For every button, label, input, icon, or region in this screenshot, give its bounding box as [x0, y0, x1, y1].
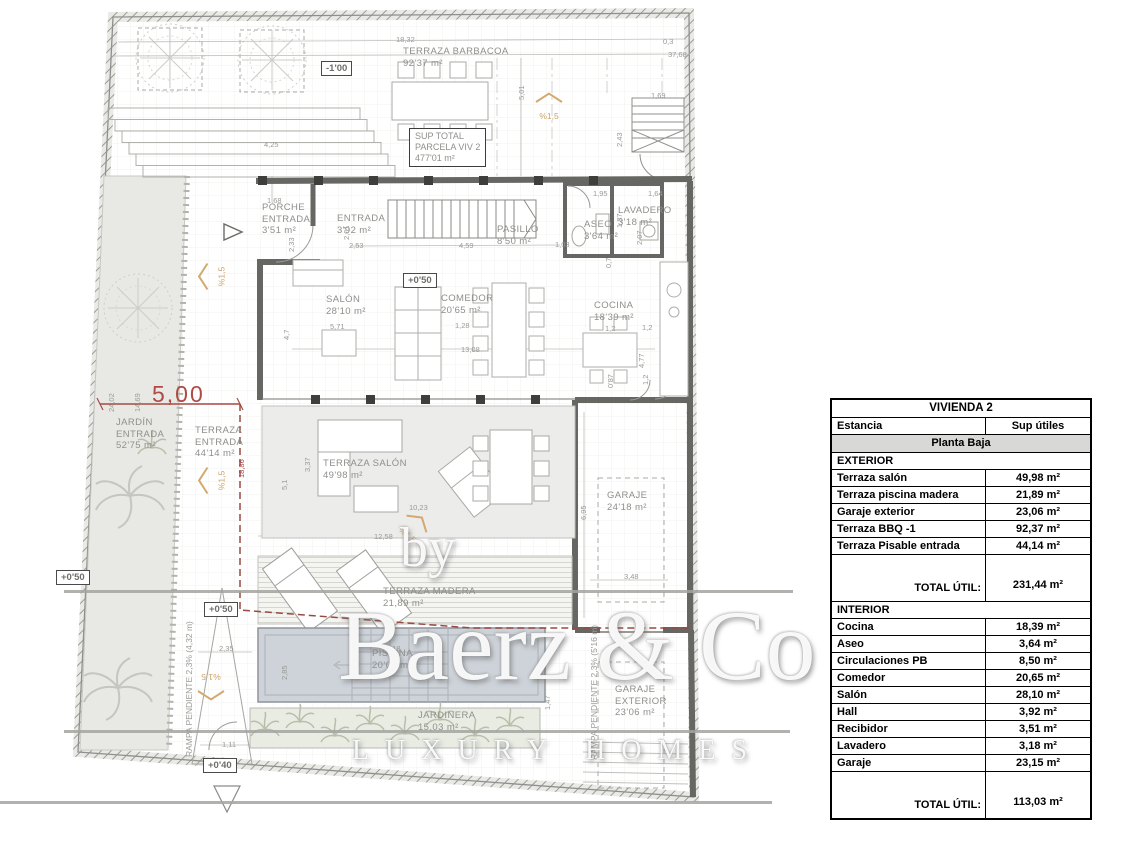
dimension-label: 1,28 [455, 322, 470, 330]
dimension-label: 0,3 [663, 38, 673, 46]
area-table: VIVIENDA 2EstanciaSup útilesPlanta BajaE… [830, 398, 1092, 820]
table-row: Terraza piscina madera21,89 m² [832, 486, 1090, 503]
table-row: Recibidor3,51 m² [832, 720, 1090, 737]
dimension-label: 4,25 [264, 141, 279, 149]
slope-chevron-icon [206, 468, 217, 494]
table-row: Salón28,10 m² [832, 686, 1090, 703]
room-name-cell: Salón [832, 687, 986, 703]
dimension-label: 4,7 [283, 330, 291, 340]
dimension-label: 2,43 [616, 132, 624, 147]
room-area-cell: 28,10 m² [986, 687, 1090, 703]
dimension-label: 2,01 [343, 225, 351, 240]
room-area-cell: 3,92 m² [986, 704, 1090, 720]
slope-chevron-icon [198, 682, 224, 693]
table-row: Terraza salón49,98 m² [832, 469, 1090, 486]
dimension-label: 2,07 [636, 230, 644, 245]
total-value-cell: 113,03 m² [986, 772, 1090, 818]
dimension-label: 3,37 [304, 457, 312, 472]
dimension-label: 1,47 [544, 695, 552, 710]
table-row: Lavadero3,18 m² [832, 737, 1090, 754]
dimension-label: 4,59 [459, 242, 474, 250]
sup-total-box: SUP TOTAL PARCELA VIV 2 477'01 m² [409, 128, 486, 167]
dimension-label: 1,2 [642, 375, 650, 385]
room-label: GARAJE EXTERIOR 23'06 m² [615, 684, 667, 719]
slope-label: %1,5 [198, 672, 224, 682]
room-label: PASILLO 8'50 m² [497, 224, 539, 247]
room-area-cell: 18,39 m² [986, 619, 1090, 635]
dimension-label: 10,23 [409, 504, 428, 512]
dimension-label: 1,68 [267, 197, 282, 205]
slope-marker: %1,5 [206, 264, 227, 290]
red-dimension: 5,00 [152, 381, 205, 408]
dimension-label: 0'87 [607, 374, 615, 388]
room-name-cell: Garaje exterior [832, 504, 986, 520]
room-label: JARDINERA 15,03 m² [418, 710, 475, 733]
dimension-label: 18,86 [238, 459, 246, 478]
room-name-cell: Cocina [832, 619, 986, 635]
dimension-label: 5,1 [281, 480, 289, 490]
dimension-label: 1,2 [605, 325, 615, 333]
dimension-label: 24,02 [108, 393, 116, 412]
table-row: Hall3,92 m² [832, 703, 1090, 720]
dimension-label: 5,01 [518, 85, 526, 100]
table-row: Garaje exterior23,06 m² [832, 503, 1090, 520]
ramp-label: RAMPA PENDIENTE 2,3% (5'16 m) [589, 625, 599, 760]
table-row: Terraza BBQ -192,37 m² [832, 520, 1090, 537]
total-value-cell: 231,44 m² [986, 555, 1090, 601]
room-name-cell: Terraza Pisable entrada [832, 538, 986, 554]
level-badge: +0'50 [204, 602, 238, 617]
dimension-label: 2,85 [281, 665, 289, 680]
ramp-label: RAMPA PENDIENTE 2,3% (4,32 m) [184, 621, 194, 757]
room-area-cell: 23,06 m² [986, 504, 1090, 520]
room-area-cell: 3,51 m² [986, 721, 1090, 737]
table-title: VIVIENDA 2 [832, 400, 1090, 417]
planter [250, 702, 540, 748]
dimension-label: 1,03 [555, 241, 570, 249]
room-label: GARAJE 24'18 m² [607, 490, 647, 513]
room-area-cell: 8,50 m² [986, 653, 1090, 669]
table-total-row: TOTAL ÚTIL:231,44 m² [832, 554, 1090, 601]
room-name-cell: Terraza BBQ -1 [832, 521, 986, 537]
dimension-label: 13,08 [461, 346, 480, 354]
room-name-cell: Aseo [832, 636, 986, 652]
dimension-label: 1,87 [616, 213, 624, 228]
slope-chevron-icon [206, 264, 217, 290]
dimension-label: 12,58 [374, 533, 393, 541]
level-badge: +0'40 [203, 758, 237, 773]
watermark-line [0, 801, 772, 804]
room-name-cell: Recibidor [832, 721, 986, 737]
room-area-cell: 44,14 m² [986, 538, 1090, 554]
dimension-label: 2,33 [288, 237, 296, 252]
dimension-label: 1,64 [648, 190, 663, 198]
dimension-label: 4,77 [638, 353, 646, 368]
room-label: PORCHE ENTRADA 3'51 m² [262, 202, 310, 237]
slope-marker: %1,5 [198, 672, 224, 693]
table-row: Terraza Pisable entrada44,14 m² [832, 537, 1090, 554]
dimension-label: 0,7 [605, 258, 613, 268]
total-label-cell: TOTAL ÚTIL: [832, 772, 986, 818]
room-label: TERRAZA SALÓN 49'98 m² [323, 458, 407, 481]
dimension-label: 2,53 [349, 242, 364, 250]
table-header: EstanciaSup útiles [832, 417, 1090, 434]
slope-label: %1,5 [217, 264, 227, 290]
dimension-label: 14,69 [134, 393, 142, 412]
dimension-label: 1,11 [222, 741, 236, 749]
table-row: Garaje23,15 m² [832, 754, 1090, 771]
table-row: Cocina18,39 m² [832, 618, 1090, 635]
room-label: TERRAZA MADERA 21,89 m² [383, 586, 476, 609]
dimension-label: 1,69 [651, 92, 666, 100]
dimension-label: 6,95 [580, 505, 588, 520]
room-area-cell: 21,89 m² [986, 487, 1090, 503]
slope-label: %1,5 [536, 111, 562, 121]
slope-chevron-icon [536, 100, 562, 111]
dimension-label: 9,18 [386, 645, 401, 653]
dimension-label: 2,35 [219, 645, 234, 653]
room-area-cell: 92,37 m² [986, 521, 1090, 537]
dimension-label: 18,32 [396, 36, 415, 44]
level-badge: -1'00 [321, 61, 352, 76]
table-section-title: Planta Baja [832, 434, 1090, 452]
dimension-label: 3,48 [624, 573, 639, 581]
slope-marker: %1,5 [536, 100, 562, 121]
column-area-header: Sup útiles [986, 418, 1090, 434]
room-label: TERRAZA BARBACOA 92'37 m² [403, 46, 509, 69]
dimension-label: 37,68 [668, 51, 687, 59]
level-badge: +0'50 [56, 570, 90, 585]
room-area-cell: 3,18 m² [986, 738, 1090, 754]
total-label-cell: TOTAL ÚTIL: [832, 555, 986, 601]
room-name-cell: Hall [832, 704, 986, 720]
room-area-cell: 20,65 m² [986, 670, 1090, 686]
table-group-header: INTERIOR [832, 601, 1090, 618]
column-room-header: Estancia [832, 418, 986, 434]
room-name-cell: Terraza piscina madera [832, 487, 986, 503]
room-label: LAVADERO 3'18 m² [618, 205, 672, 228]
garden-strip [80, 176, 187, 750]
slope-label: %1,5 [217, 468, 227, 494]
floor-plan-page: TERRAZA BARBACOA 92'37 m²PORCHE ENTRADA … [0, 0, 1121, 841]
table-group-header: EXTERIOR [832, 452, 1090, 469]
dimension-label: 1,2 [642, 324, 652, 332]
room-label: COMEDOR 20'65 m² [441, 293, 493, 316]
room-name-cell: Terraza salón [832, 470, 986, 486]
room-area-cell: 49,98 m² [986, 470, 1090, 486]
table-row: Comedor20,65 m² [832, 669, 1090, 686]
table-row: Aseo3,64 m² [832, 635, 1090, 652]
room-area-cell: 3,64 m² [986, 636, 1090, 652]
table-total-row: TOTAL ÚTIL:113,03 m² [832, 771, 1090, 818]
dimension-label: 5,71 [330, 323, 345, 331]
dimension-label: 1,95 [593, 190, 608, 198]
level-badge: +0'50 [403, 273, 437, 288]
room-name-cell: Circulaciones PB [832, 653, 986, 669]
room-name-cell: Lavadero [832, 738, 986, 754]
table-row: Circulaciones PB8,50 m² [832, 652, 1090, 669]
room-name-cell: Comedor [832, 670, 986, 686]
room-name-cell: Garaje [832, 755, 986, 771]
room-label: ASEO 3'64 m² [584, 219, 618, 242]
room-label: TERRAZA ENTRADA 44'14 m² [195, 425, 243, 460]
slope-marker: %1,5 [206, 468, 227, 494]
room-label: SALÓN 28'10 m² [326, 294, 366, 317]
room-label: JARDÍN ENTRADA 52'75 m² [116, 417, 164, 452]
room-label: COCINA 18'39 m² [594, 300, 634, 323]
room-area-cell: 23,15 m² [986, 755, 1090, 771]
